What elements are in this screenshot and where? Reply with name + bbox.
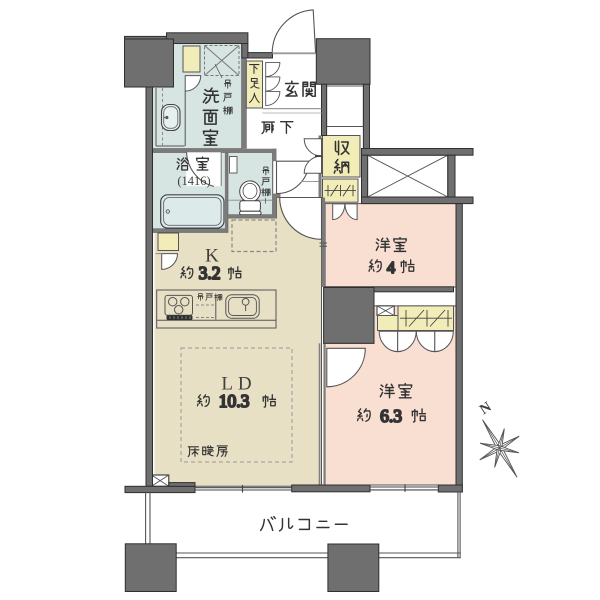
svg-text:10.3: 10.3 [219, 391, 250, 411]
svg-text:4: 4 [387, 258, 395, 277]
svg-text:6.3: 6.3 [380, 406, 402, 426]
svg-text:(1416): (1416) [177, 174, 210, 188]
svg-text:N: N [477, 399, 495, 418]
svg-text:3.2: 3.2 [199, 263, 221, 283]
